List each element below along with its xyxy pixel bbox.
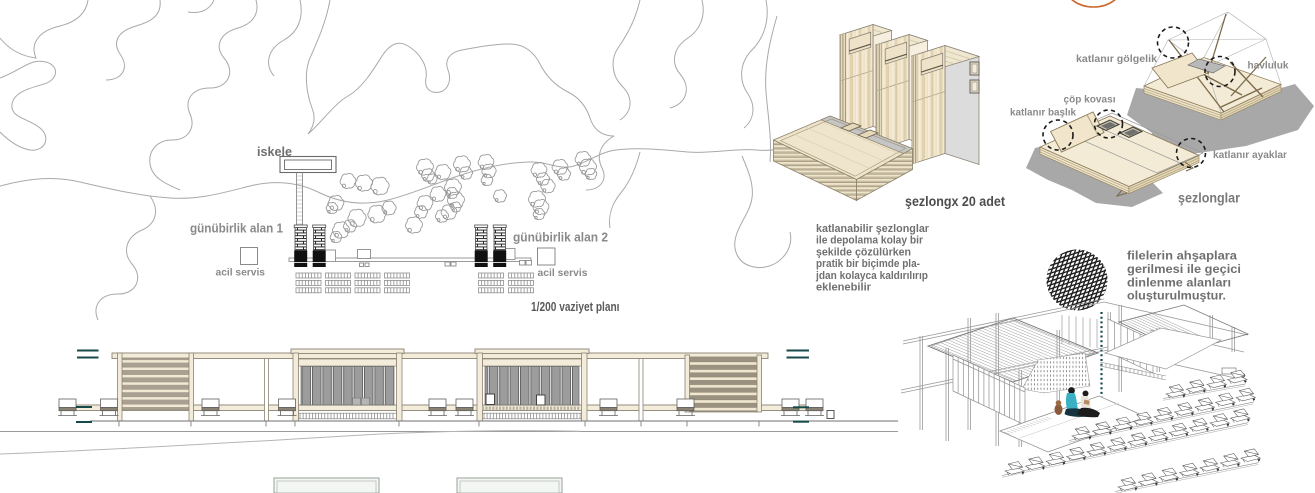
svg-text:çöp kovası: çöp kovası <box>1064 94 1116 106</box>
svg-text:havluluk: havluluk <box>1248 60 1289 72</box>
svg-text:acil servis: acil servis <box>538 267 588 279</box>
svg-text:filelerin ahşaplaragerilmesi i: filelerin ahşaplaragerilmesi ile geçicid… <box>1127 249 1241 303</box>
svg-text:günübirlik alan 1: günübirlik alan 1 <box>190 222 283 236</box>
svg-text:şezlongx 20 adet: şezlongx 20 adet <box>905 194 1005 209</box>
svg-text:katlanır ayaklar: katlanır ayaklar <box>1213 149 1287 161</box>
svg-text:acil servis: acil servis <box>216 267 266 279</box>
svg-text:katlanır başlık: katlanır başlık <box>1010 107 1076 119</box>
svg-text:şezlonglar: şezlonglar <box>1178 191 1241 206</box>
svg-text:günübirlik alan 2: günübirlik alan 2 <box>513 231 608 245</box>
svg-text:katlanır gölgelik: katlanır gölgelik <box>1076 53 1157 65</box>
svg-text:1/200 vaziyet planı: 1/200 vaziyet planı <box>531 300 620 314</box>
